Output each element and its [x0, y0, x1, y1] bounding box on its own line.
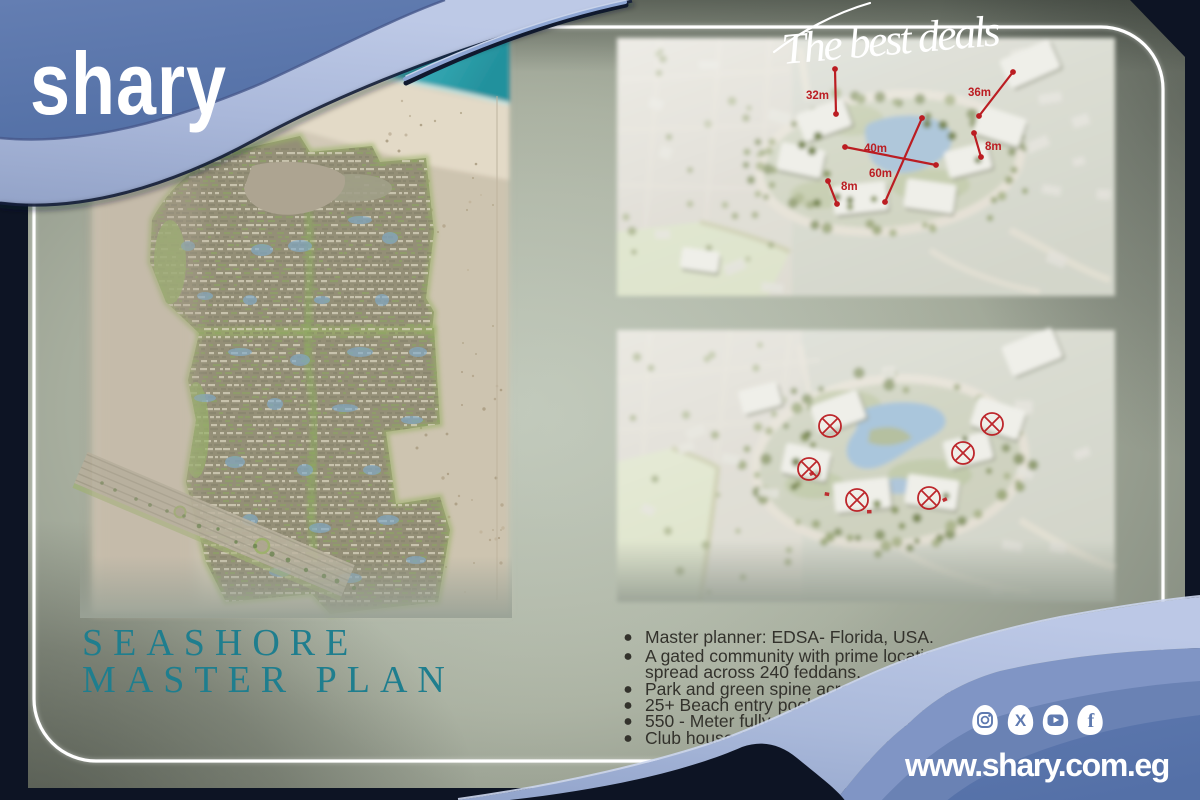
svg-text:36m: 36m: [968, 87, 991, 99]
svg-text:X: X: [1015, 711, 1027, 730]
svg-text:Master planner: EDSA- Florida,: Master planner: EDSA- Florida, USA.: [645, 627, 934, 647]
svg-text:8m: 8m: [985, 141, 1002, 153]
svg-text:60m: 60m: [869, 168, 892, 180]
svg-text:www.shary.com.eg: www.shary.com.eg: [904, 747, 1169, 783]
svg-text:shary: shary: [30, 35, 227, 133]
svg-text:SEASHORE: SEASHORE: [82, 622, 358, 664]
svg-text:40m: 40m: [864, 143, 887, 155]
svg-text:8m: 8m: [841, 181, 858, 193]
svg-text:32m: 32m: [806, 90, 829, 102]
svg-text:f: f: [1088, 710, 1095, 732]
svg-text:MASTER PLAN: MASTER PLAN: [82, 659, 455, 701]
